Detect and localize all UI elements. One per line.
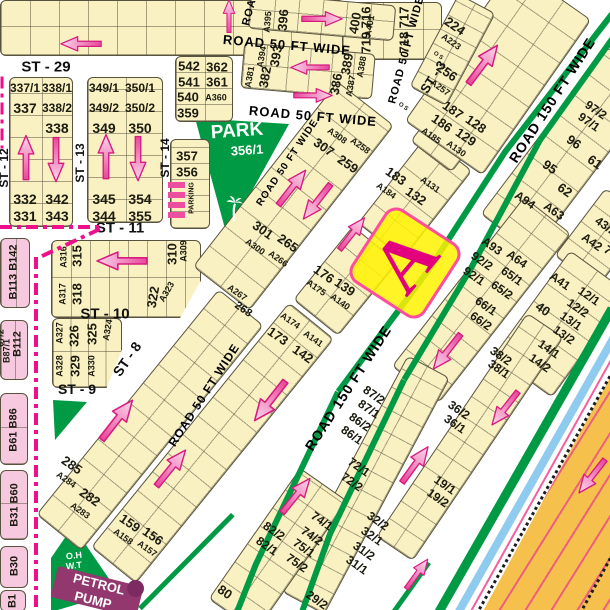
plot-label: A309 [180,240,189,262]
plot-label: B113 B142 [9,244,20,299]
area-label: PARKING [189,182,196,214]
plot-label: B61 B86 [9,408,20,451]
plot-label: 542 [178,60,200,73]
plot-label: B31 B60 [10,483,21,526]
plot-label: 355 [128,209,151,223]
plot-label: B87/1 [3,339,12,363]
plot-label: O S [397,102,409,113]
overhead-tank-label-line2: W.T [66,561,83,572]
direction-arrow [96,250,148,272]
plot-label: 396 [276,9,291,32]
plot-label: 337 [13,101,36,115]
plot-label: B1 [8,594,19,608]
plot-label: 350/2 [125,102,155,114]
plot-label: 349 [92,121,115,135]
plot-label: A330 [88,355,97,377]
street-label: ST - 13 [74,143,86,182]
park-number-label: 356/1 [230,142,263,157]
plot-label: 350 [128,121,151,135]
green-belt-triangle [51,398,89,442]
direction-arrow [290,59,330,76]
plot-label: 344 [92,209,115,223]
plot-label: 325 [86,323,99,345]
plot-map-canvas[interactable]: PARK 356/1 O.H W.T PETROL PUMP A ST - 29… [0,0,610,610]
plot-label: 361 [206,76,228,89]
plot-label: 337/1 [10,82,40,94]
direction-arrow [399,554,434,594]
plot-label: 362 [206,61,228,74]
direction-arrow [60,35,102,53]
plot-label: 343 [45,209,68,223]
boundary-line [1,76,4,148]
plot-label: 338 [45,121,68,135]
plot-label: 356 [176,166,198,179]
street-label: ST - 9 [58,382,96,396]
plot-label: 718 717 [398,7,411,54]
plot-label: 541 [178,76,200,89]
street-label: ST - 14 [159,138,171,177]
plot-label: 359 [177,107,199,120]
boundary-line [0,225,100,229]
direction-arrow [16,135,35,181]
park-label: PARK [210,120,264,143]
plot-label: A395 [263,11,274,33]
plot-label: 382 [257,65,274,89]
plot-label: B112 [13,331,24,357]
plot-label: B30 [10,556,21,576]
boundary-line [34,257,38,610]
direction-arrow [222,0,236,33]
plot-label: 349/1 [89,82,119,94]
street-label: ST - 12 [0,148,10,187]
plot-label: 338/1 [42,82,72,94]
plot-label: 329 [69,355,82,377]
plot-label: 315 [71,245,84,267]
plot-label: 354 [128,192,151,206]
plot-label: A360 [205,94,227,103]
plot-label: 389 [339,52,356,76]
plot-label: 400 [347,11,364,35]
plot-label: A317 [59,283,68,305]
direction-arrow [96,134,115,180]
plot-label: 310 [166,243,179,265]
plot-label: 540 [177,91,199,104]
direction-arrow [301,10,343,28]
plot-label: 338/2 [42,102,72,114]
plot-label: 393 [268,44,285,68]
plot-label: 345 [92,192,115,206]
plot-label: 357 [176,150,198,163]
plot-label: 386 [328,72,345,96]
plot-label: 350/1 [125,82,155,94]
parking-bays [168,178,185,218]
plot-label: 342 [45,192,68,206]
plot-label: 332 [13,192,36,206]
street-label: ST - 29 [21,60,70,75]
plot-label: 331 [13,209,36,223]
direction-arrow [46,137,65,183]
plot-label: 318 [71,283,84,305]
direction-arrow [128,136,147,182]
roundabout-dot [127,580,144,597]
plot-label: 326 [68,325,81,347]
plot-label: 349/2 [89,102,119,114]
plot-label: A328 [56,355,65,377]
palm-tree-icon [221,190,247,224]
plot-label: A327 [56,322,65,344]
